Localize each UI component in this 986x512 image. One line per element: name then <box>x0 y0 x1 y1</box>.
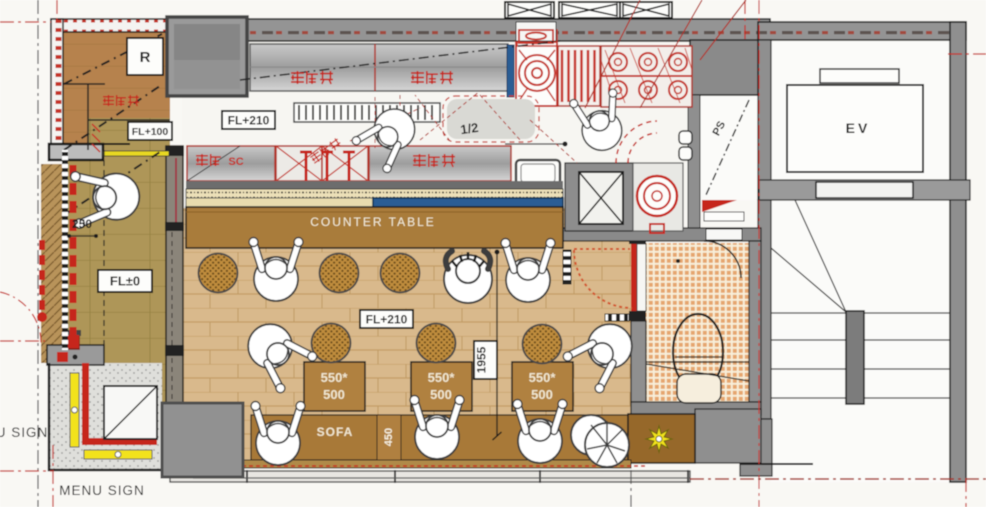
svg-text:EV: EV <box>846 120 871 136</box>
svg-text:250: 250 <box>72 217 92 231</box>
svg-text:SC: SC <box>228 156 243 168</box>
svg-text:FL+100: FL+100 <box>132 126 169 138</box>
svg-text:FL+210: FL+210 <box>366 312 408 326</box>
svg-text:FL±0: FL±0 <box>110 274 140 289</box>
svg-text:SOFA: SOFA <box>317 425 354 439</box>
svg-text:500: 500 <box>531 387 553 402</box>
svg-text:550*: 550* <box>321 370 349 385</box>
svg-text:1955: 1955 <box>475 346 489 373</box>
svg-text:R: R <box>140 49 151 66</box>
svg-text:MENU SIGN: MENU SIGN <box>59 483 145 498</box>
svg-text:500: 500 <box>323 387 345 402</box>
svg-text:FL+210: FL+210 <box>228 113 270 127</box>
svg-text:1/2: 1/2 <box>459 120 479 137</box>
svg-text:450: 450 <box>383 428 395 446</box>
svg-text:COUNTER TABLE: COUNTER TABLE <box>310 215 436 229</box>
svg-text:550*: 550* <box>428 370 456 385</box>
svg-text:U SIGN: U SIGN <box>0 425 48 440</box>
svg-text:550*: 550* <box>529 370 557 385</box>
svg-text:500: 500 <box>430 387 452 402</box>
